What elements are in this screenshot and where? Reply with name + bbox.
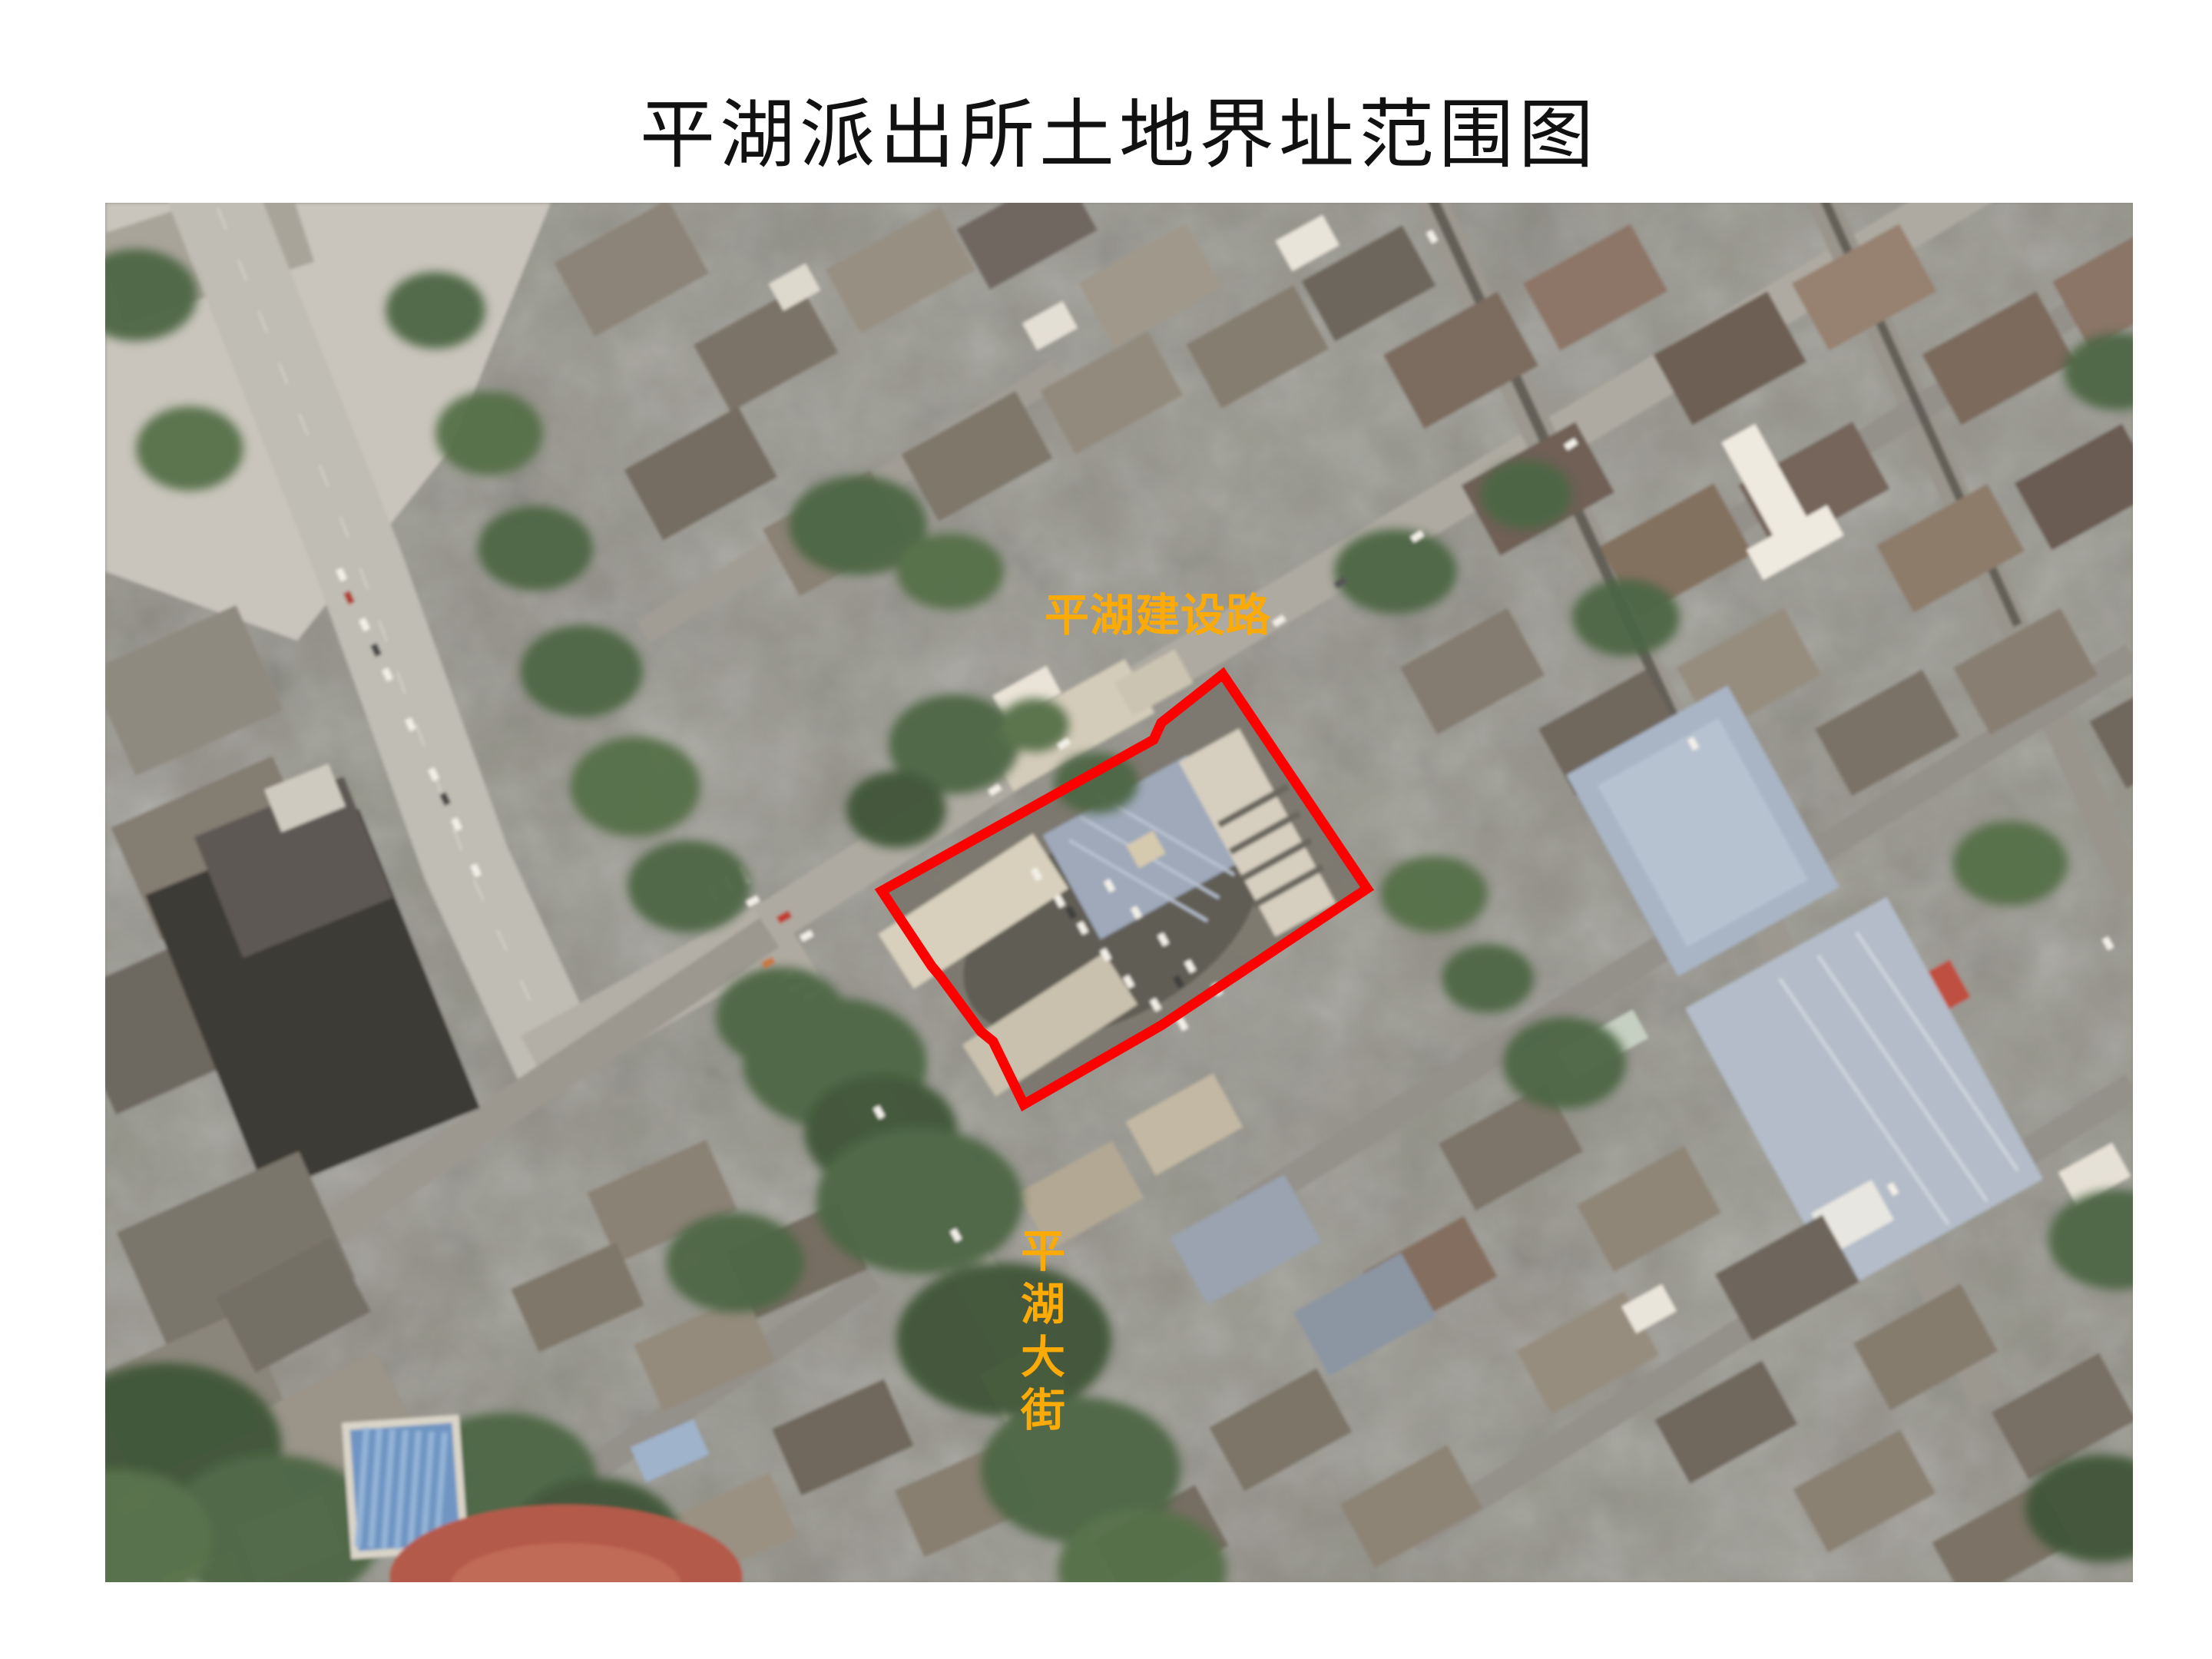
road-label-pinghu-dajie: 平湖大街 [1016, 1227, 1061, 1439]
page: 平湖派出所土地界址范围图 [0, 0, 2212, 1659]
satellite-imagery [105, 203, 2133, 1582]
satellite-map: 平湖建设路 平湖大街 [105, 203, 2133, 1582]
road-label-jianshe-lu: 平湖建设路 [1045, 594, 1271, 638]
page-title: 平湖派出所土地界址范围图 [105, 74, 2133, 183]
ground-fabric [105, 203, 2133, 1582]
